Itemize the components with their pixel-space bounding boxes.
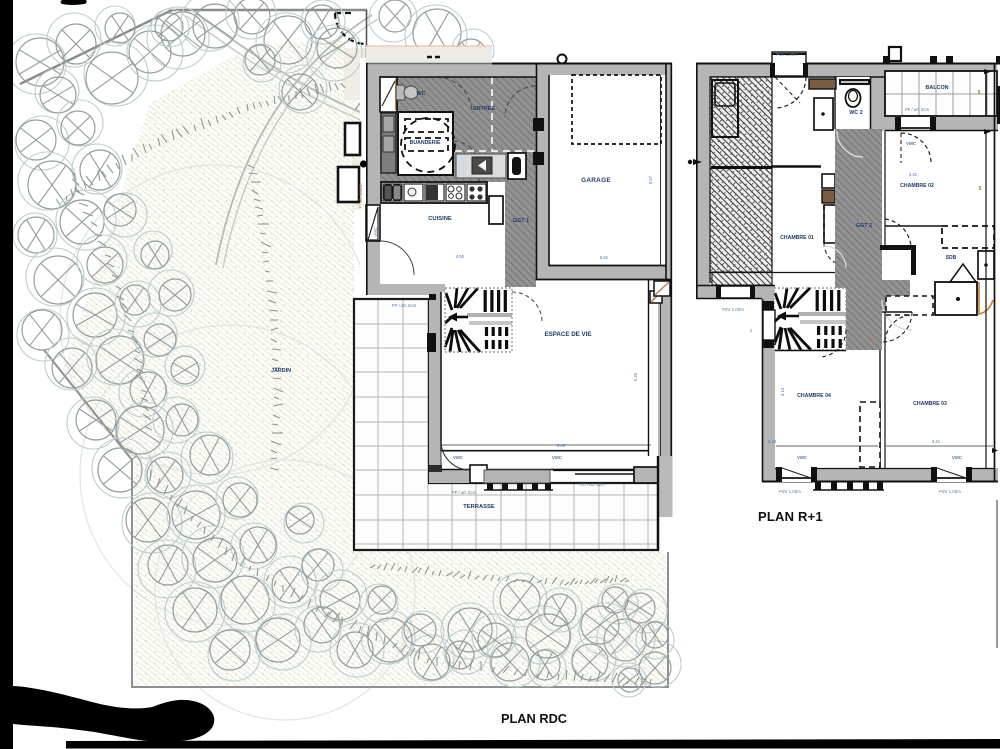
svg-text:GARAGE: GARAGE <box>581 177 611 184</box>
svg-text:5.25: 5.25 <box>633 372 638 381</box>
svg-text:PF / a0. 5cm: PF / a0. 5cm <box>905 107 930 112</box>
svg-text:ENTREE: ENTREE <box>473 106 495 112</box>
svg-text:SDB: SDB <box>946 255 957 261</box>
svg-text:GGT 1: GGT 1 <box>513 218 529 224</box>
svg-text:3.19: 3.19 <box>768 439 777 444</box>
svg-text:VMC: VMC <box>552 455 563 460</box>
svg-text:RC / a1. 5cm: RC / a1. 5cm <box>579 482 604 487</box>
svg-text:PdV 1.00m: PdV 1.00m <box>722 307 744 312</box>
svg-text:4.41: 4.41 <box>909 172 918 177</box>
svg-text:TERRASSE: TERRASSE <box>463 504 495 510</box>
svg-text:VMC: VMC <box>373 227 378 236</box>
svg-text:CHAMBRE 02: CHAMBRE 02 <box>900 183 934 189</box>
svg-text:VMC: VMC <box>906 141 917 146</box>
svg-text:CUISINE: CUISINE <box>428 216 452 222</box>
svg-text:CHAMBRE 03: CHAMBRE 03 <box>913 401 947 407</box>
svg-text:WC: WC <box>416 91 425 97</box>
svg-text:PLAN RDC: PLAN RDC <box>501 711 567 726</box>
svg-text:3.13: 3.13 <box>780 387 785 396</box>
svg-text:ESPACE DE VIE: ESPACE DE VIE <box>545 331 592 338</box>
svg-text:5: 5 <box>979 186 982 192</box>
svg-text:PdV 1.00m: PdV 1.00m <box>776 52 798 57</box>
svg-text:PLAN R+1: PLAN R+1 <box>758 509 823 524</box>
svg-text:PdV 1.00m: PdV 1.00m <box>779 489 801 494</box>
svg-text:PP / a0. 5cm: PP / a0. 5cm <box>392 303 417 308</box>
svg-text:PP / a0. 5cm: PP / a0. 5cm <box>452 490 477 495</box>
svg-text:WC 2: WC 2 <box>849 110 862 116</box>
svg-text:BUANDERIE: BUANDERIE <box>410 140 441 146</box>
svg-text:VMC: VMC <box>952 455 963 460</box>
svg-text:5.67: 5.67 <box>648 175 653 184</box>
svg-text:5: 5 <box>978 90 981 96</box>
svg-text:5.81: 5.81 <box>600 255 609 260</box>
svg-text:4.41: 4.41 <box>932 439 941 444</box>
svg-text:F / a0. 145cm: F / a0. 145cm <box>358 183 363 209</box>
svg-text:BALCON: BALCON <box>925 85 948 91</box>
svg-text:JARDIN: JARDIN <box>271 368 291 374</box>
svg-text:PdV 1.00m: PdV 1.00m <box>939 489 961 494</box>
svg-text:CHAMBRE 01: CHAMBRE 01 <box>780 235 814 241</box>
svg-text:5.48: 5.48 <box>557 443 566 448</box>
svg-text:GGT 2: GGT 2 <box>856 223 872 229</box>
svg-text:CHAMBRE 04: CHAMBRE 04 <box>797 393 831 399</box>
svg-text:4.50: 4.50 <box>456 254 465 259</box>
svg-text:VMC: VMC <box>453 455 464 460</box>
svg-text:VMC: VMC <box>797 455 808 460</box>
